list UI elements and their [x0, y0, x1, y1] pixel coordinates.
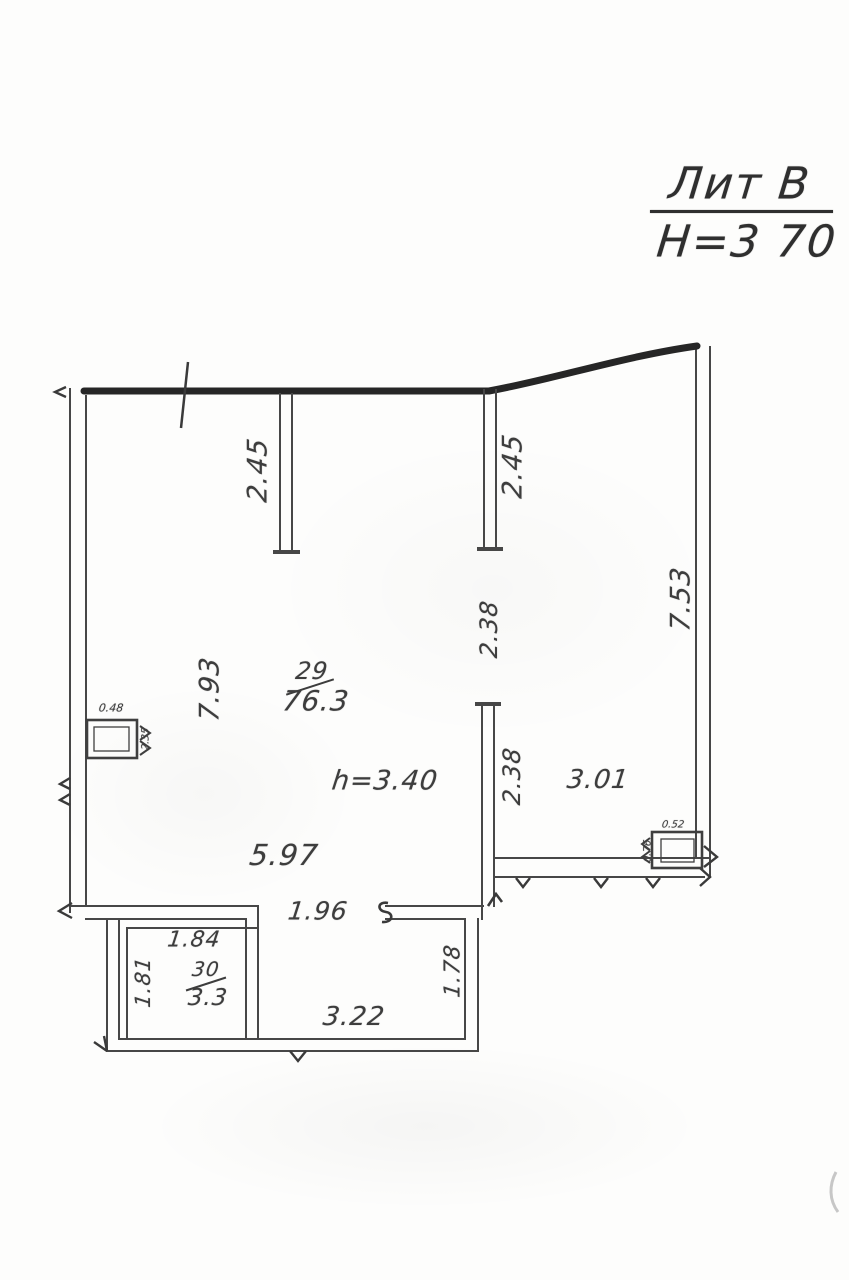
- dim-partition-right: 2.45: [498, 432, 529, 500]
- vent-left-width-label: 0.48: [98, 702, 124, 715]
- title-height-note: Н=3 70: [654, 217, 839, 268]
- dim-annex-width: 3.22: [321, 1002, 387, 1032]
- door-jamb-mark: [379, 894, 502, 922]
- room-main-ceiling-height: h=3.40: [330, 766, 440, 797]
- title-underline: [650, 210, 833, 213]
- dim-annex-right: 1.78: [441, 943, 466, 999]
- dim-annex-room-top: 1.84: [166, 928, 222, 953]
- dim-right-wall: 7.53: [666, 565, 697, 633]
- dim-left-wall: 7.93: [195, 655, 226, 723]
- room-annex-number: 30: [191, 957, 221, 981]
- dim-annex-room-left: 1.81: [131, 955, 155, 1009]
- top-wall: [84, 346, 697, 391]
- annex-walls: [107, 919, 478, 1051]
- vent-right-height-label: 0.76: [643, 839, 654, 863]
- dim-opening-upper: 2.38: [475, 599, 503, 660]
- vent-right-width-label: 0.52: [661, 820, 685, 831]
- room-annex-area: 3.3: [187, 985, 230, 1011]
- dim-main-room-width: 5.97: [248, 838, 321, 872]
- title-litera: Лит В: [667, 159, 814, 210]
- scan-artifact: [831, 1172, 838, 1212]
- dim-opening-lower: 2.38: [498, 746, 526, 807]
- room-main-area: 76.3: [281, 685, 351, 718]
- dim-doorway-width: 1.96: [286, 897, 349, 926]
- vent-left-height-label: 2.35: [141, 727, 152, 751]
- dim-right-room-width: 3.01: [565, 765, 631, 795]
- dim-partition-left: 2.45: [243, 436, 274, 504]
- top-wall-tick: [181, 362, 188, 428]
- outer-walls: [70, 347, 710, 928]
- floor-plan-sheet: Лит В Н=3 70 2.45 2.45 7.53 2.38 2.38 7.…: [0, 0, 849, 1280]
